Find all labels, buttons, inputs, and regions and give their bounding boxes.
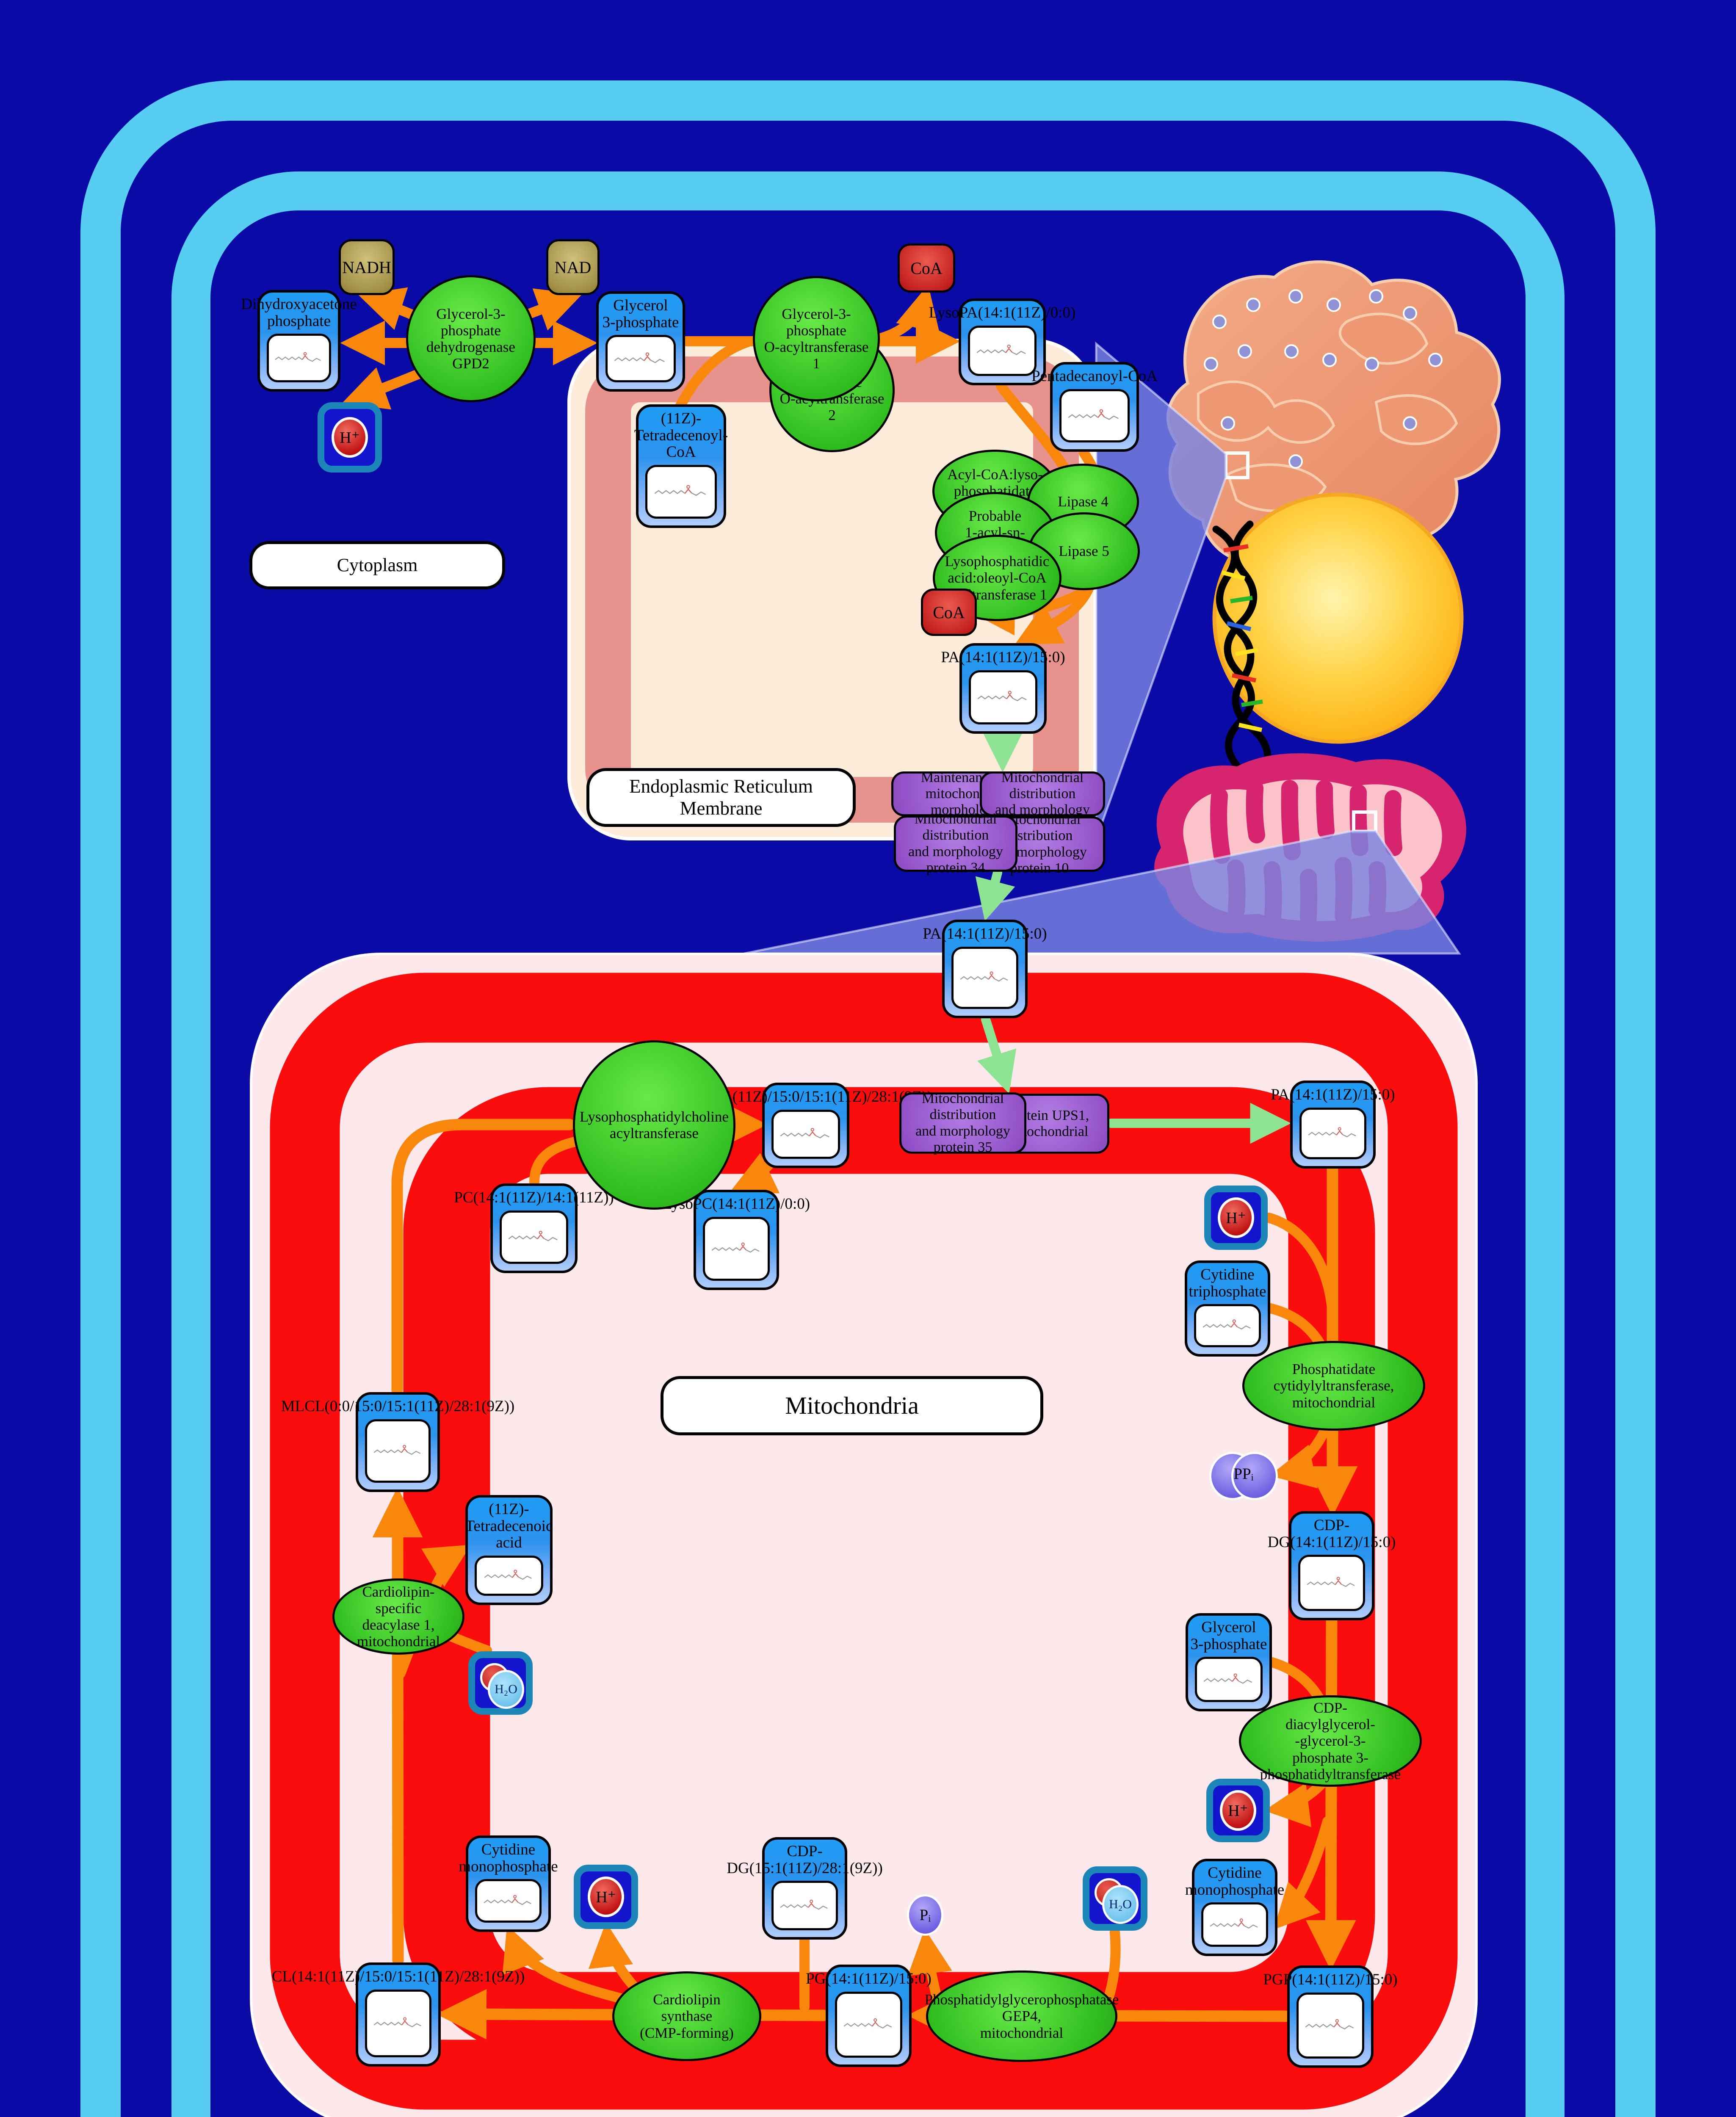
green-complex-to-pa-mid — [987, 873, 998, 911]
structure-thumbnail — [835, 1992, 902, 2058]
metabolite-ctp[interactable]: Cytidine triphosphate — [1185, 1260, 1270, 1357]
structure-thumbnail — [951, 947, 1018, 1009]
proton-dot: H⁺ — [332, 417, 368, 458]
metabolite-tetradecenoic-acid[interactable]: (11Z)- Tetradecenoic acid — [465, 1495, 553, 1605]
metabolite-label-pg: PG(14:1(11Z)/15:0) — [806, 1967, 932, 1987]
hplus-icon-h-plus-3[interactable]: H⁺ — [1206, 1779, 1270, 1842]
structure-thumbnail — [969, 670, 1037, 724]
metabolite-glycerol-3-phosphate-mito[interactable]: Glycerol 3-phosphate — [1186, 1613, 1272, 1711]
metabolite-label-mlcl: MLCL(0:0/15:0/15:1(11Z)/28:1(9Z)) — [281, 1395, 515, 1415]
enzyme-gpat1[interactable]: Glycerol-3- phosphate O-acyltransferase … — [753, 276, 880, 401]
metabolite-cmp-right[interactable]: Cytidine monophosphate — [1192, 1859, 1277, 1956]
metabolite-label-glycerol-3-phosphate: Glycerol 3-phosphate — [603, 294, 679, 331]
enzyme-lysophosphatidylcholine-acyltransferase[interactable]: Lysophosphatidylcholine acyltransferase — [573, 1040, 735, 1210]
structure-thumbnail — [1201, 1902, 1268, 1947]
metabolite-label-cmp-left: Cytidine monophosphate — [459, 1838, 558, 1875]
cofactor-coa-1[interactable]: CoA — [898, 243, 955, 293]
structure-thumbnail — [771, 1881, 838, 1930]
enzyme-phosphatidate-cytidylyltransferase[interactable]: Phosphatidate cytidylyltransferase, mito… — [1242, 1341, 1425, 1431]
arrow-branch-tetradecenoyl-coa — [680, 342, 747, 406]
phosphate-icon-pi[interactable]: Pᵢ — [907, 1894, 943, 1936]
metabolite-pa-mid[interactable]: PA(14:1(11Z)/15:0) — [942, 920, 1028, 1018]
mitochondria-label-text: Mitochondria — [785, 1392, 919, 1420]
water-dot: H₂O — [488, 1670, 524, 1709]
proton-dot: H⁺ — [1218, 1197, 1254, 1238]
enzyme-cardiolipin-specific-deacylase-1[interactable]: Cardiolipin- specific deacylase 1, mitoc… — [332, 1578, 464, 1655]
metabolite-label-pa-mid: PA(14:1(11Z)/15:0) — [923, 922, 1047, 942]
structure-thumbnail — [1298, 1555, 1365, 1611]
structure-thumbnail — [1195, 1657, 1263, 1702]
metabolite-label-ctp: Cytidine triphosphate — [1189, 1263, 1266, 1300]
proton-dot: H⁺ — [1220, 1790, 1256, 1831]
structure-thumbnail — [365, 1419, 431, 1483]
water-icon-h2o-left[interactable]: H₂O — [468, 1651, 533, 1715]
metabolite-label-cmp-right: Cytidine monophosphate — [1185, 1861, 1284, 1898]
arrow-trunk-to-cmp-right — [1281, 1821, 1327, 1921]
metabolite-label-pa-er: PA(14:1(11Z)/15:0) — [941, 646, 1065, 666]
pathway-canvas: Cytoplasm Endoplasmic Reticulum Membrane… — [0, 0, 1736, 2117]
metabolite-pa-mito[interactable]: PA(14:1(11Z)/15:0) — [1290, 1081, 1376, 1169]
structure-thumbnail — [365, 1990, 431, 2057]
structure-thumbnail — [968, 326, 1037, 376]
metabolite-cl-top[interactable]: CL(14:1(11Z)/15:0/15:1(11Z)/28:1(9Z)) — [762, 1083, 849, 1168]
metabolite-label-cdp-dg-1: CDP- DG(14:1(11Z)/15:0) — [1268, 1514, 1396, 1550]
metabolite-cdp-dg-2[interactable]: CDP- DG(15:1(11Z)/28:1(9Z)) — [762, 1837, 847, 1940]
metabolite-label-pc: PC(14:1(11Z)/14:1(11Z)) — [454, 1186, 614, 1206]
cofactor-nad[interactable]: NAD — [546, 239, 600, 295]
trunk-cl-to-mlcl — [398, 1500, 398, 1960]
metabolite-label-pa-mito: PA(14:1(11Z)/15:0) — [1271, 1083, 1395, 1103]
metabolite-cl-bottom[interactable]: CL(14:1(11Z)/15:0/15:1(11Z)/28:1(9Z)) — [356, 1962, 441, 2067]
metabolite-cdp-dg-1[interactable]: CDP- DG(14:1(11Z)/15:0) — [1289, 1511, 1374, 1620]
metabolite-glycerol-3-phosphate[interactable]: Glycerol 3-phosphate — [596, 291, 685, 392]
metabolite-lysopc[interactable]: LysoPC(14:1(11Z)/0:0) — [694, 1190, 779, 1290]
metabolite-label-tetradecenoic-acid: (11Z)- Tetradecenoic acid — [465, 1498, 553, 1551]
complex-mdm-unnamed[interactable]: Mitochondrial distribution and morpholog… — [980, 771, 1105, 816]
metabolite-pa-er[interactable]: PA(14:1(11Z)/15:0) — [959, 643, 1047, 734]
structure-thumbnail — [771, 1110, 840, 1159]
metabolite-label-cdp-dg-2: CDP- DG(15:1(11Z)/28:1(9Z)) — [727, 1840, 883, 1877]
complex-mdm34[interactable]: Mitochondrial distribution and morpholog… — [894, 815, 1017, 872]
structure-thumbnail — [267, 334, 331, 382]
cytoplasm-label: Cytoplasm — [249, 541, 505, 589]
hplus-icon-h-plus-2[interactable]: H⁺ — [1204, 1186, 1268, 1250]
pyrophosphate-icon-ppi[interactable]: PPᵢ — [1209, 1452, 1278, 1496]
structure-thumbnail — [1059, 389, 1130, 442]
enzyme-gep4[interactable]: Phosphatidylglycerophosphatase GEP4, mit… — [926, 1971, 1117, 2062]
structure-thumbnail — [645, 465, 717, 519]
structure-thumbnail — [475, 1879, 542, 1923]
enzyme-cdp-dag-g3p-3-phosphatidyltransferase[interactable]: CDP- diacylglycerol- -glycerol-3- phosph… — [1239, 1695, 1422, 1787]
cofactor-nadh[interactable]: NADH — [339, 239, 395, 295]
metabolite-label-lysopa: LysoPA(14:1(11Z)/0:0) — [929, 301, 1076, 321]
arrow-hplus2-to-trunk — [1269, 1218, 1332, 1313]
structure-thumbnail — [500, 1211, 568, 1264]
metabolite-tetradecenoyl-coa[interactable]: (11Z)- Tetradecenoyl- CoA — [636, 404, 726, 528]
enzyme-cardiolipin-synthase[interactable]: Cardiolipin synthase (CMP-forming) — [612, 1971, 761, 2061]
proton-dot: H⁺ — [588, 1877, 624, 1917]
ppi-label: PPᵢ — [1209, 1452, 1278, 1496]
hplus-icon-h-plus-1[interactable]: H⁺ — [318, 402, 382, 473]
er-membrane-label-text: Endoplasmic Reticulum Membrane — [629, 776, 813, 820]
trunk-cdpdg-to-pgp — [1331, 1622, 1332, 1958]
cytoplasm-label-text: Cytoplasm — [337, 555, 418, 576]
water-dot: H₂O — [1102, 1885, 1139, 1924]
metabolite-cmp-left[interactable]: Cytidine monophosphate — [466, 1835, 551, 1932]
structure-thumbnail — [1194, 1304, 1261, 1347]
metabolite-label-tetradecenoyl-coa: (11Z)- Tetradecenoyl- CoA — [634, 407, 728, 461]
structure-thumbnail — [605, 335, 676, 382]
metabolite-label-pgp: PGP(14:1(11Z)/15:0) — [1263, 1968, 1397, 1988]
green-pa-mid-to-ups1 — [986, 1020, 1006, 1084]
metabolite-mlcl[interactable]: MLCL(0:0/15:0/15:1(11Z)/28:1(9Z)) — [356, 1392, 440, 1492]
er-membrane-label: Endoplasmic Reticulum Membrane — [586, 768, 856, 827]
water-icon-h2o-right[interactable]: H₂O — [1083, 1866, 1147, 1931]
enzyme-gpd2[interactable]: Glycerol-3- phosphate dehydrogenase GPD2 — [406, 275, 536, 402]
hplus-icon-h-plus-4[interactable]: H⁺ — [574, 1865, 638, 1929]
metabolite-label-glycerol-3-phosphate-mito: Glycerol 3-phosphate — [1191, 1616, 1267, 1653]
metabolite-label-cl-bottom: CL(14:1(11Z)/15:0/15:1(11Z)/28:1(9Z)) — [272, 1965, 525, 1985]
cofactor-coa-2[interactable]: CoA — [921, 589, 977, 636]
structure-thumbnail — [703, 1217, 770, 1281]
mitochondria-label: Mitochondria — [661, 1376, 1043, 1435]
metabolite-label-pentadecanoyl-coa: Pentadecanoyl-CoA — [1031, 365, 1158, 385]
metabolite-pg[interactable]: PG(14:1(11Z)/15:0) — [826, 1965, 912, 2067]
structure-thumbnail — [1299, 1108, 1366, 1159]
metabolite-pc[interactable]: PC(14:1(11Z)/14:1(11Z)) — [490, 1183, 578, 1273]
metabolite-pgp[interactable]: PGP(14:1(11Z)/15:0) — [1287, 1965, 1374, 2068]
metabolite-pentadecanoyl-coa[interactable]: Pentadecanoyl-CoA — [1050, 362, 1139, 452]
structure-thumbnail — [1296, 1993, 1364, 2059]
metabolite-dhap[interactable]: Dihydroxyacetone phosphate — [257, 290, 340, 392]
complex-mdm35[interactable]: Mitochondrial distribution and morpholog… — [899, 1092, 1026, 1154]
metabolite-label-dhap: Dihydroxyacetone phosphate — [241, 293, 357, 329]
structure-thumbnail — [475, 1556, 543, 1596]
